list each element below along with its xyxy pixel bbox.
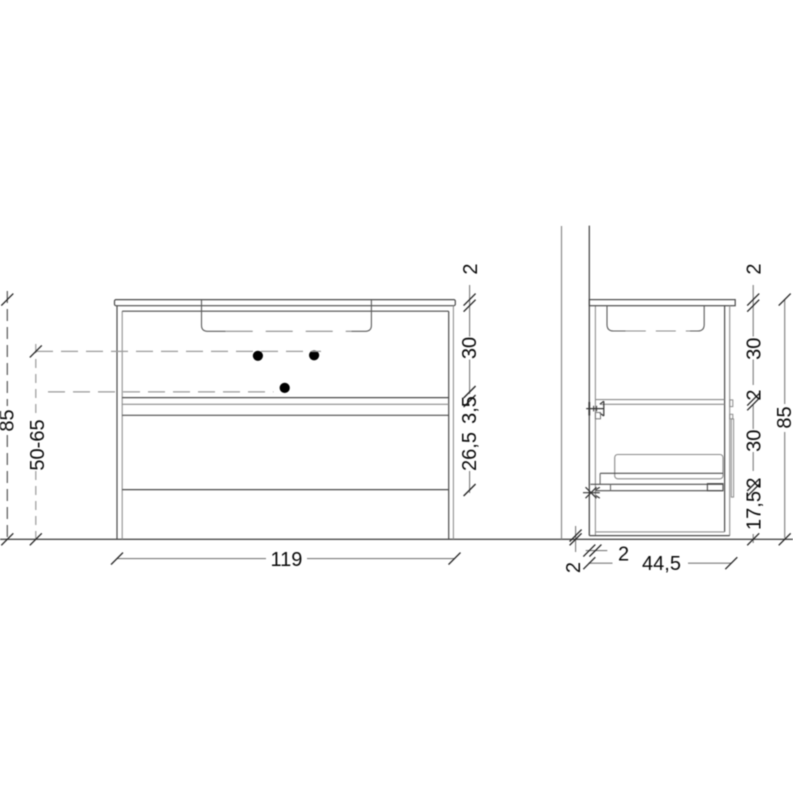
svg-text:2: 2 bbox=[563, 562, 585, 573]
svg-text:2: 2 bbox=[618, 544, 629, 566]
svg-text:85: 85 bbox=[0, 409, 19, 431]
svg-text:30: 30 bbox=[459, 337, 481, 359]
svg-text:85: 85 bbox=[774, 406, 793, 428]
svg-text:2: 2 bbox=[744, 263, 766, 274]
svg-text:30: 30 bbox=[744, 338, 766, 360]
svg-text:2: 2 bbox=[744, 477, 766, 488]
svg-text:2: 2 bbox=[744, 389, 766, 400]
svg-text:119: 119 bbox=[271, 549, 303, 571]
svg-text:50-65: 50-65 bbox=[27, 419, 49, 470]
svg-text:44,5: 44,5 bbox=[642, 553, 681, 575]
svg-text:2: 2 bbox=[460, 263, 482, 274]
svg-text:17,5: 17,5 bbox=[744, 491, 766, 530]
svg-text:30: 30 bbox=[744, 430, 766, 452]
svg-text:3,5: 3,5 bbox=[459, 396, 481, 424]
svg-text:26,5: 26,5 bbox=[459, 432, 481, 471]
